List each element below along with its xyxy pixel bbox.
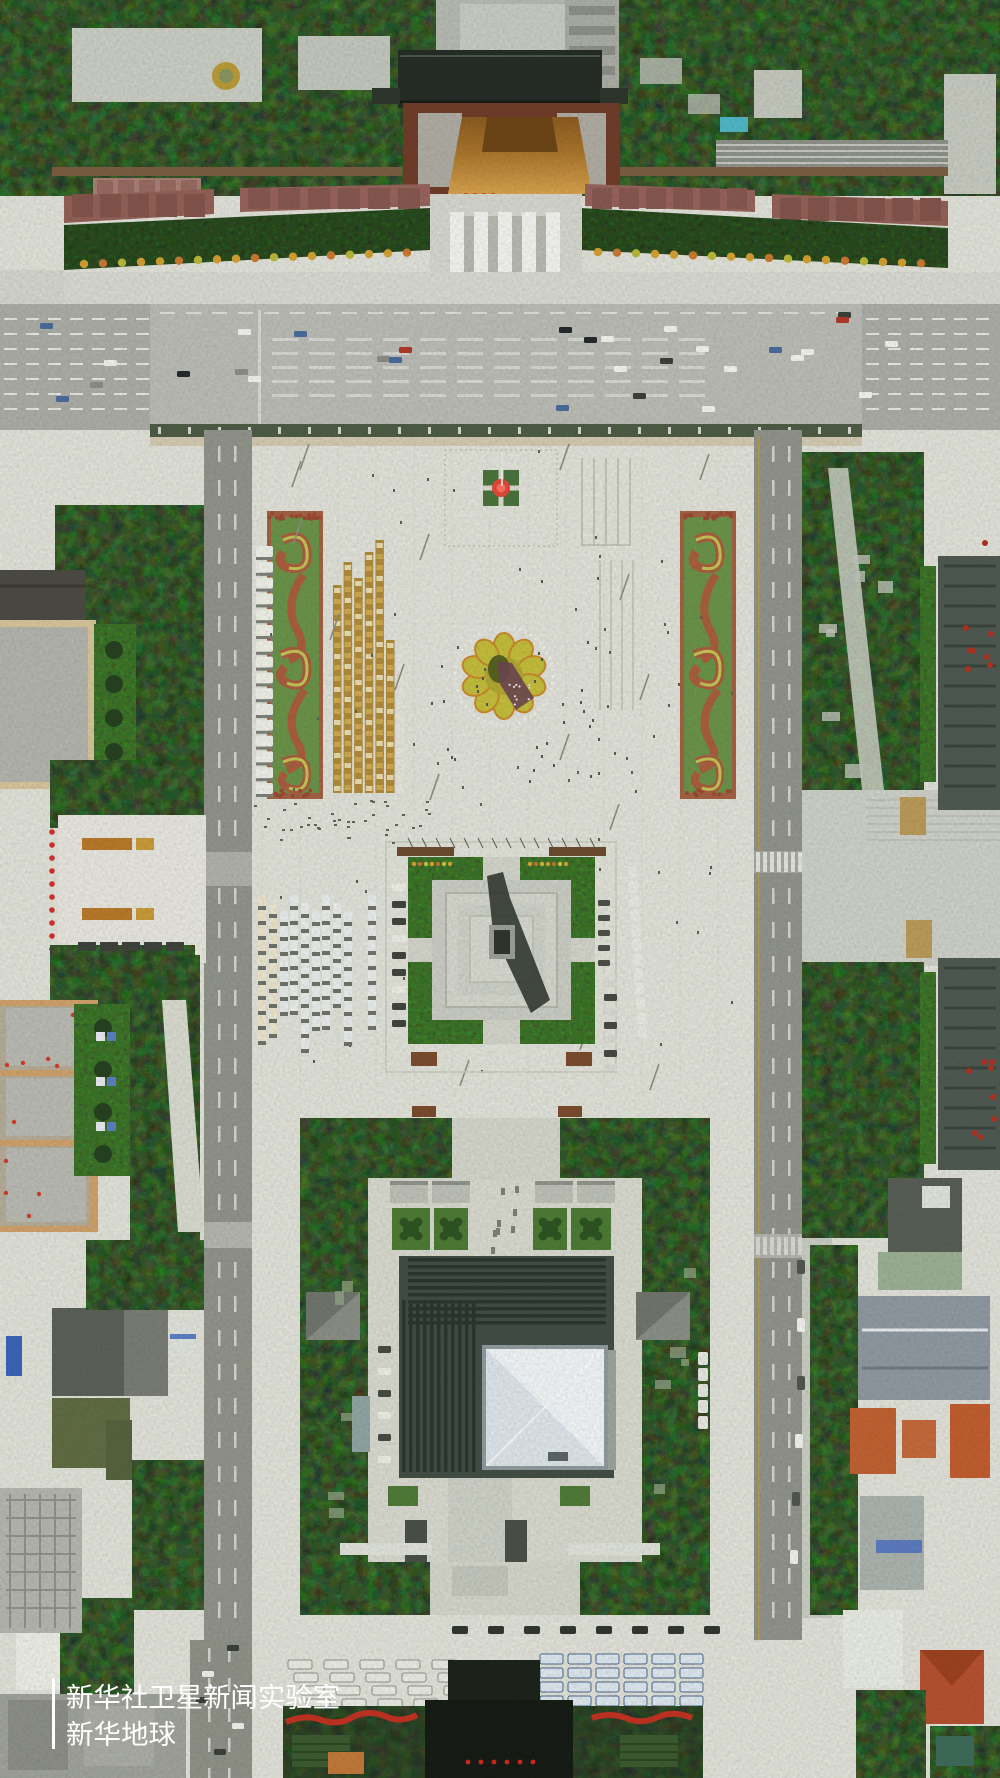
svg-text:新华社卫星新闻实验室: 新华社卫星新闻实验室 xyxy=(66,1683,340,1713)
svg-text:新华地球: 新华地球 xyxy=(66,1720,176,1750)
